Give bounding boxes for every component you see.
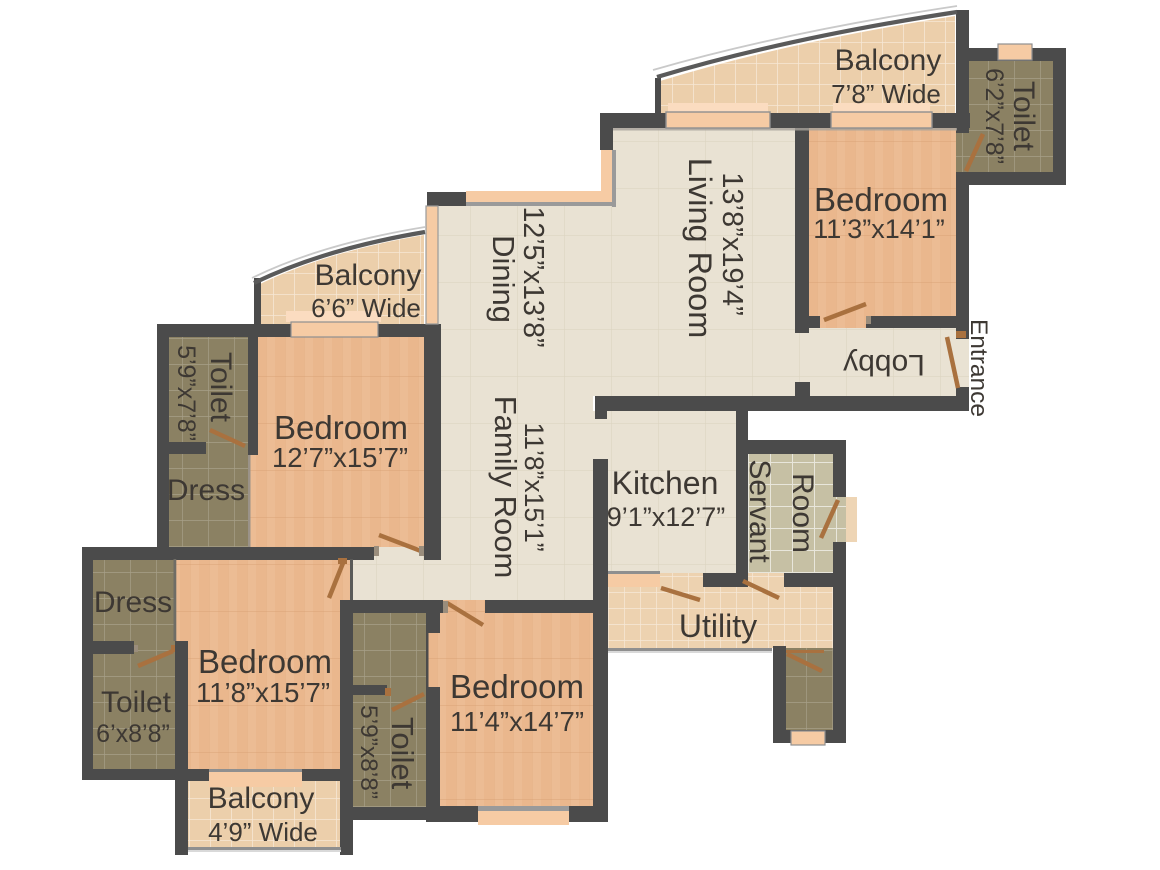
svg-text:Toilet: Toilet xyxy=(1007,81,1040,152)
svg-text:Room: Room xyxy=(786,473,819,553)
svg-text:6’x8’8”: 6’x8’8” xyxy=(96,720,170,748)
svg-text:11’8”x15’7”: 11’8”x15’7” xyxy=(196,677,330,708)
svg-text:7’8” Wide: 7’8” Wide xyxy=(831,79,941,109)
svg-text:Balcony: Balcony xyxy=(208,782,315,815)
svg-text:5’9”x7’8”: 5’9”x7’8” xyxy=(172,345,200,441)
svg-text:Dress: Dress xyxy=(167,474,245,507)
svg-text:4’9” Wide: 4’9” Wide xyxy=(208,817,318,847)
svg-text:Living Room: Living Room xyxy=(682,158,718,339)
svg-text:11’8”x15’1”: 11’8”x15’1” xyxy=(519,422,549,551)
svg-text:Utility: Utility xyxy=(679,608,757,644)
svg-text:Toilet: Toilet xyxy=(385,717,420,790)
svg-text:Balcony: Balcony xyxy=(315,259,422,292)
svg-text:Kitchen: Kitchen xyxy=(612,465,719,501)
svg-text:5’9”x8’8”: 5’9”x8’8” xyxy=(355,705,382,799)
svg-text:6’2”x7’8”: 6’2”x7’8” xyxy=(980,68,1008,164)
svg-text:12’7”x15’7”: 12’7”x15’7” xyxy=(272,442,408,473)
svg-text:Bedroom: Bedroom xyxy=(198,643,332,680)
svg-text:Dining: Dining xyxy=(486,235,521,323)
svg-text:11’3”x14’1”: 11’3”x14’1” xyxy=(813,214,945,244)
svg-text:11’4”x14’7”: 11’4”x14’7” xyxy=(450,706,584,737)
svg-text:12’5”x13’8”: 12’5”x13’8” xyxy=(517,207,549,348)
svg-text:13’8”x19’4”: 13’8”x19’4” xyxy=(716,172,748,315)
svg-text:Toilet: Toilet xyxy=(204,352,237,423)
svg-text:9’1”x12’7”: 9’1”x12’7” xyxy=(607,502,726,532)
svg-text:Servant: Servant xyxy=(743,459,776,563)
svg-text:Dress: Dress xyxy=(94,586,172,619)
svg-text:Bedroom: Bedroom xyxy=(814,181,948,218)
svg-text:Bedroom: Bedroom xyxy=(450,668,584,705)
svg-text:Lobby: Lobby xyxy=(843,348,925,381)
svg-text:Toilet: Toilet xyxy=(101,686,172,719)
svg-text:Family Room: Family Room xyxy=(488,396,523,579)
svg-text:Balcony: Balcony xyxy=(835,44,942,77)
svg-text:Bedroom: Bedroom xyxy=(274,409,408,446)
svg-text:Entrance: Entrance xyxy=(965,319,992,417)
svg-text:6’6” Wide: 6’6” Wide xyxy=(311,293,421,323)
